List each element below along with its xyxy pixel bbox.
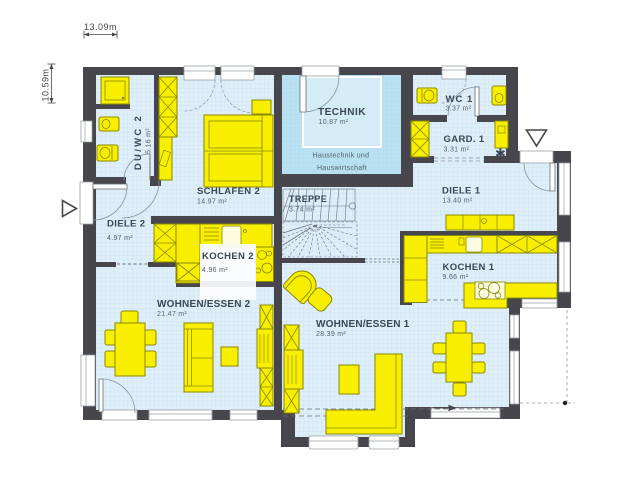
svg-text:28.39 m²: 28.39 m² xyxy=(316,331,346,338)
svg-text:KOCHEN 1: KOCHEN 1 xyxy=(443,262,495,273)
svg-text:9.66 m²: 9.66 m² xyxy=(443,274,469,281)
svg-text:TECHNIK: TECHNIK xyxy=(318,107,366,118)
svg-text:DIELE 2: DIELE 2 xyxy=(107,219,145,230)
svg-text:14.97 m²: 14.97 m² xyxy=(197,199,227,206)
svg-text:5.16 m²: 5.16 m² xyxy=(146,128,153,154)
svg-text:3.74 m²: 3.74 m² xyxy=(289,207,315,214)
svg-text:WC 1: WC 1 xyxy=(446,94,474,105)
svg-text:4.97 m²: 4.97 m² xyxy=(107,235,133,242)
svg-text:DU/WC 2: DU/WC 2 xyxy=(133,114,144,170)
svg-text:KOCHEN 2: KOCHEN 2 xyxy=(202,251,254,262)
svg-text:10.87 m²: 10.87 m² xyxy=(319,119,349,126)
svg-text:13.09m: 13.09m xyxy=(84,22,117,32)
svg-text:4.96 m²: 4.96 m² xyxy=(202,267,228,274)
svg-text:DIELE 1: DIELE 1 xyxy=(442,186,481,197)
svg-text:TREPPE: TREPPE xyxy=(289,194,327,204)
svg-text:21.47 m²: 21.47 m² xyxy=(157,311,187,318)
svg-text:13.40 m²: 13.40 m² xyxy=(443,198,473,205)
svg-text:Haustechnik und: Haustechnik und xyxy=(313,153,370,160)
svg-text:WOHNEN/ESSEN 2: WOHNEN/ESSEN 2 xyxy=(157,299,251,310)
svg-text:3.37 m²: 3.37 m² xyxy=(446,106,472,113)
svg-text:Hauswirtschaft: Hauswirtschaft xyxy=(317,165,367,172)
svg-text:WOHNEN/ESSEN 1: WOHNEN/ESSEN 1 xyxy=(316,319,410,330)
svg-text:GARD. 1: GARD. 1 xyxy=(444,134,485,145)
svg-text:✱: ✱ xyxy=(495,146,506,161)
svg-text:SCHLAFEN 2: SCHLAFEN 2 xyxy=(197,186,260,197)
svg-text:10.59m: 10.59m xyxy=(40,68,50,101)
svg-text:3.31 m²: 3.31 m² xyxy=(444,147,470,154)
